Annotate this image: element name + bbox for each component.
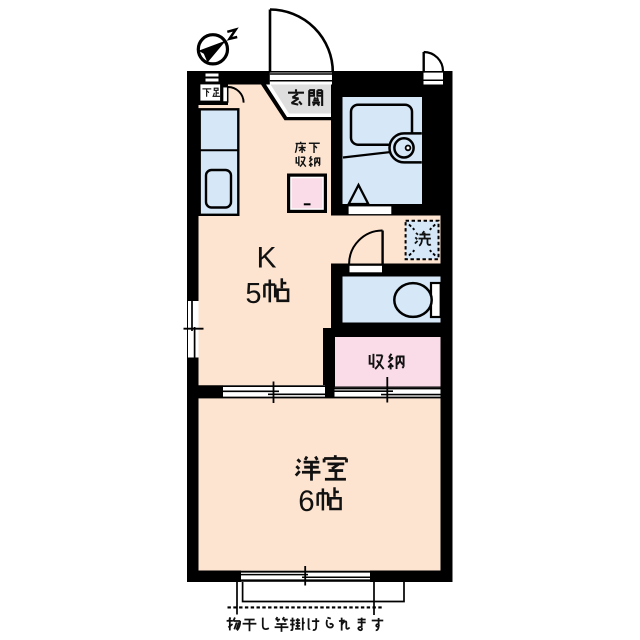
svg-text:5: 5 xyxy=(245,278,261,310)
svg-text:6: 6 xyxy=(298,485,314,518)
svg-text:K: K xyxy=(256,242,276,275)
